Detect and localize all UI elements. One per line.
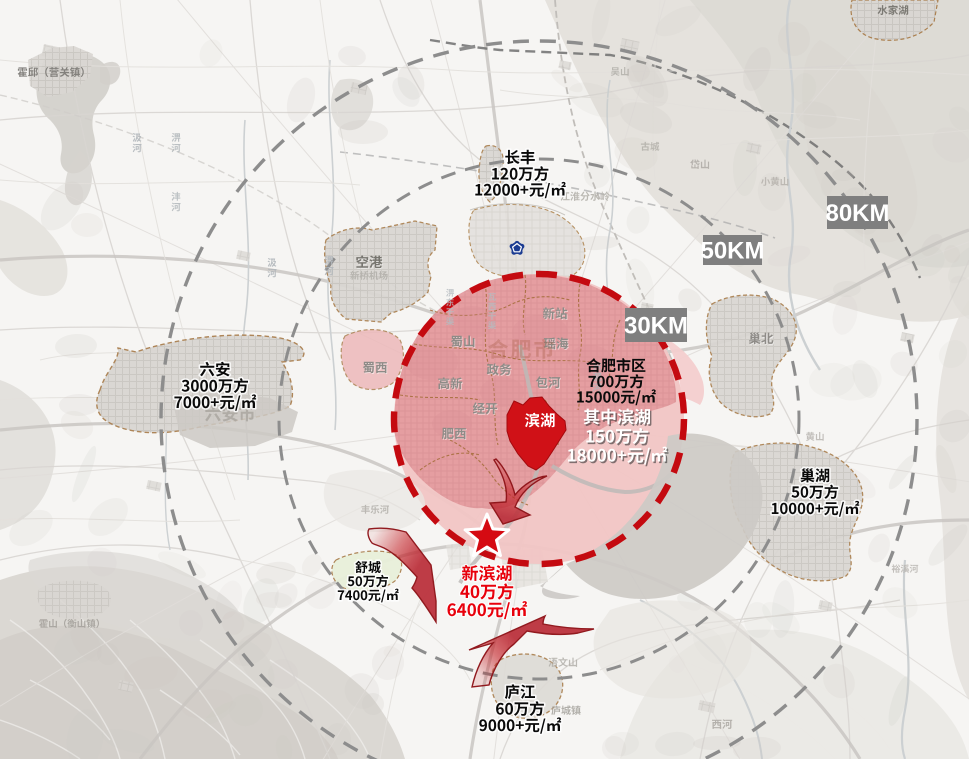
svg-text:80KM: 80KM — [825, 200, 889, 227]
svg-text:30KM: 30KM — [624, 313, 688, 340]
svg-text:50KM: 50KM — [700, 238, 764, 265]
